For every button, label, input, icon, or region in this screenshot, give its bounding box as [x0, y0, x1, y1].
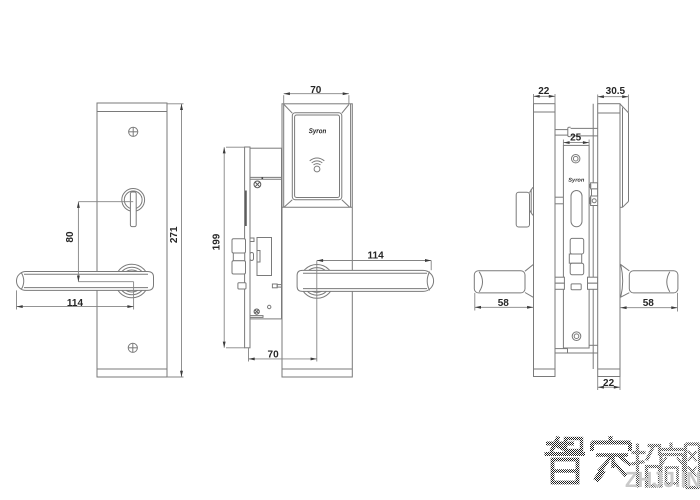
svg-text:271: 271 — [169, 226, 180, 243]
svg-text:114: 114 — [67, 298, 84, 309]
svg-text:22: 22 — [603, 378, 615, 389]
svg-text:30.5: 30.5 — [606, 86, 626, 97]
svg-text:ZHJJ.IN: ZHJJ.IN — [625, 467, 700, 492]
svg-text:199: 199 — [212, 233, 223, 250]
svg-text:25: 25 — [570, 133, 582, 144]
svg-text:114: 114 — [368, 251, 385, 262]
svg-text:58: 58 — [498, 298, 510, 309]
svg-text:58: 58 — [643, 298, 655, 309]
svg-text:70: 70 — [310, 85, 322, 96]
svg-text:Syron: Syron — [309, 128, 327, 135]
svg-text:70: 70 — [268, 349, 280, 360]
svg-text:22: 22 — [538, 86, 550, 97]
svg-text:80: 80 — [65, 231, 76, 243]
svg-text:Syron: Syron — [568, 178, 585, 184]
